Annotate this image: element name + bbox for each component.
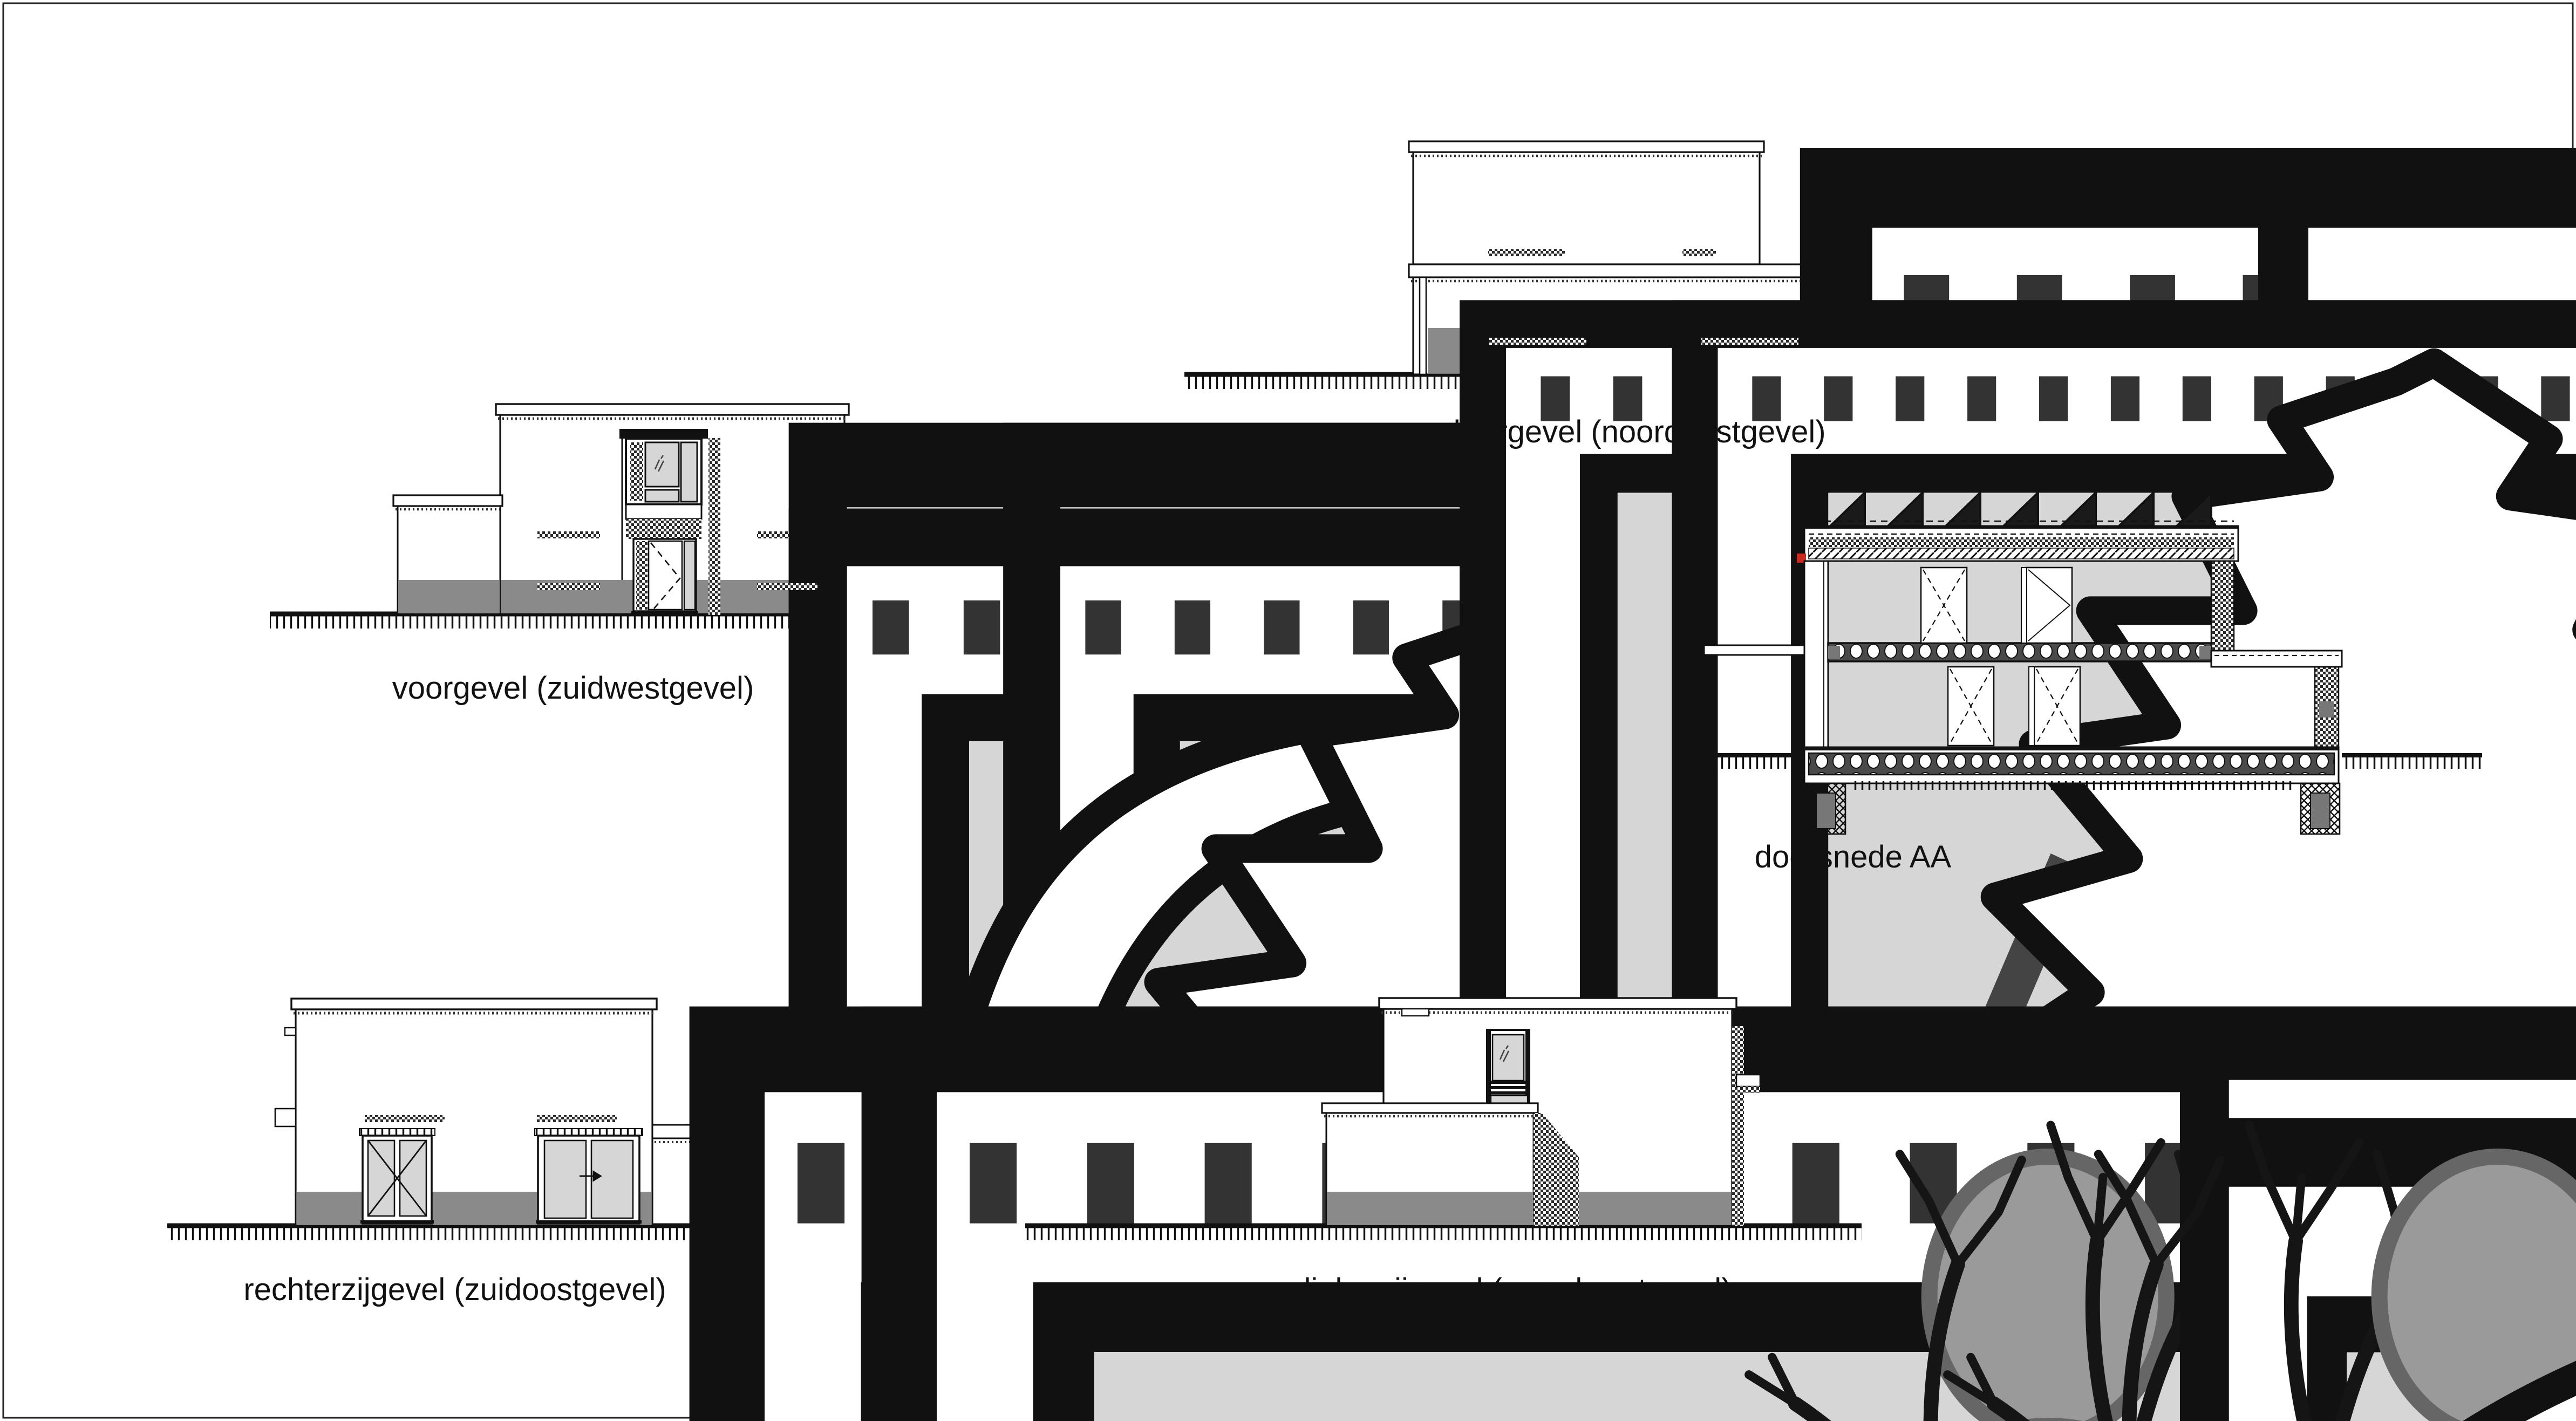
- roof-fascia: [1379, 998, 1736, 1009]
- garden-door: [359, 1129, 435, 1224]
- annex-roof-fascia: [393, 495, 502, 506]
- achtergevel-label: achtergevel (noordoostgevel): [1420, 414, 1825, 449]
- rechterzijgevel-label: rechterzijgevel (zuidoostgevel): [243, 1272, 666, 1307]
- roof-fascia: [496, 404, 849, 415]
- canopy: [1736, 1075, 1760, 1087]
- roof-fascia: [291, 999, 657, 1009]
- roof-fascia: [1409, 141, 1764, 152]
- annex-roof-fascia: [1322, 1103, 1538, 1113]
- canopy: [1409, 264, 1866, 277]
- roof-slab: [1804, 526, 2238, 561]
- doorsnede-label: doorsnede AA: [1755, 839, 1952, 875]
- entrance-lintel: [619, 429, 708, 439]
- rear-canopy: [2211, 651, 2342, 667]
- roof-vent: [1402, 1009, 1429, 1016]
- entrance-canopy: [1704, 645, 1804, 655]
- voorgevel-label: voorgevel (zuidwestgevel): [392, 671, 754, 706]
- front-door: [631, 539, 698, 614]
- ground-slab: [1804, 747, 2339, 790]
- spandrel: [626, 504, 701, 519]
- linkerzijgevel-label: linkerzijgevel (noordwestgevel): [1304, 1272, 1732, 1307]
- linkerzijgevel-annex: [1322, 1103, 1579, 1226]
- stairwell-window: [1487, 1030, 1529, 1108]
- elevations-sheet: voorgevel (zuidwestgevel) achtergevel (n…: [0, 0, 2576, 1421]
- double-door: [535, 1129, 643, 1224]
- ground-hatch: [1025, 1227, 1862, 1240]
- rechterzijgevel-house: [275, 999, 708, 1226]
- canopy-post: [1420, 277, 1426, 374]
- mid-floor-slab: [1828, 643, 2211, 661]
- meter-box: [275, 1109, 296, 1126]
